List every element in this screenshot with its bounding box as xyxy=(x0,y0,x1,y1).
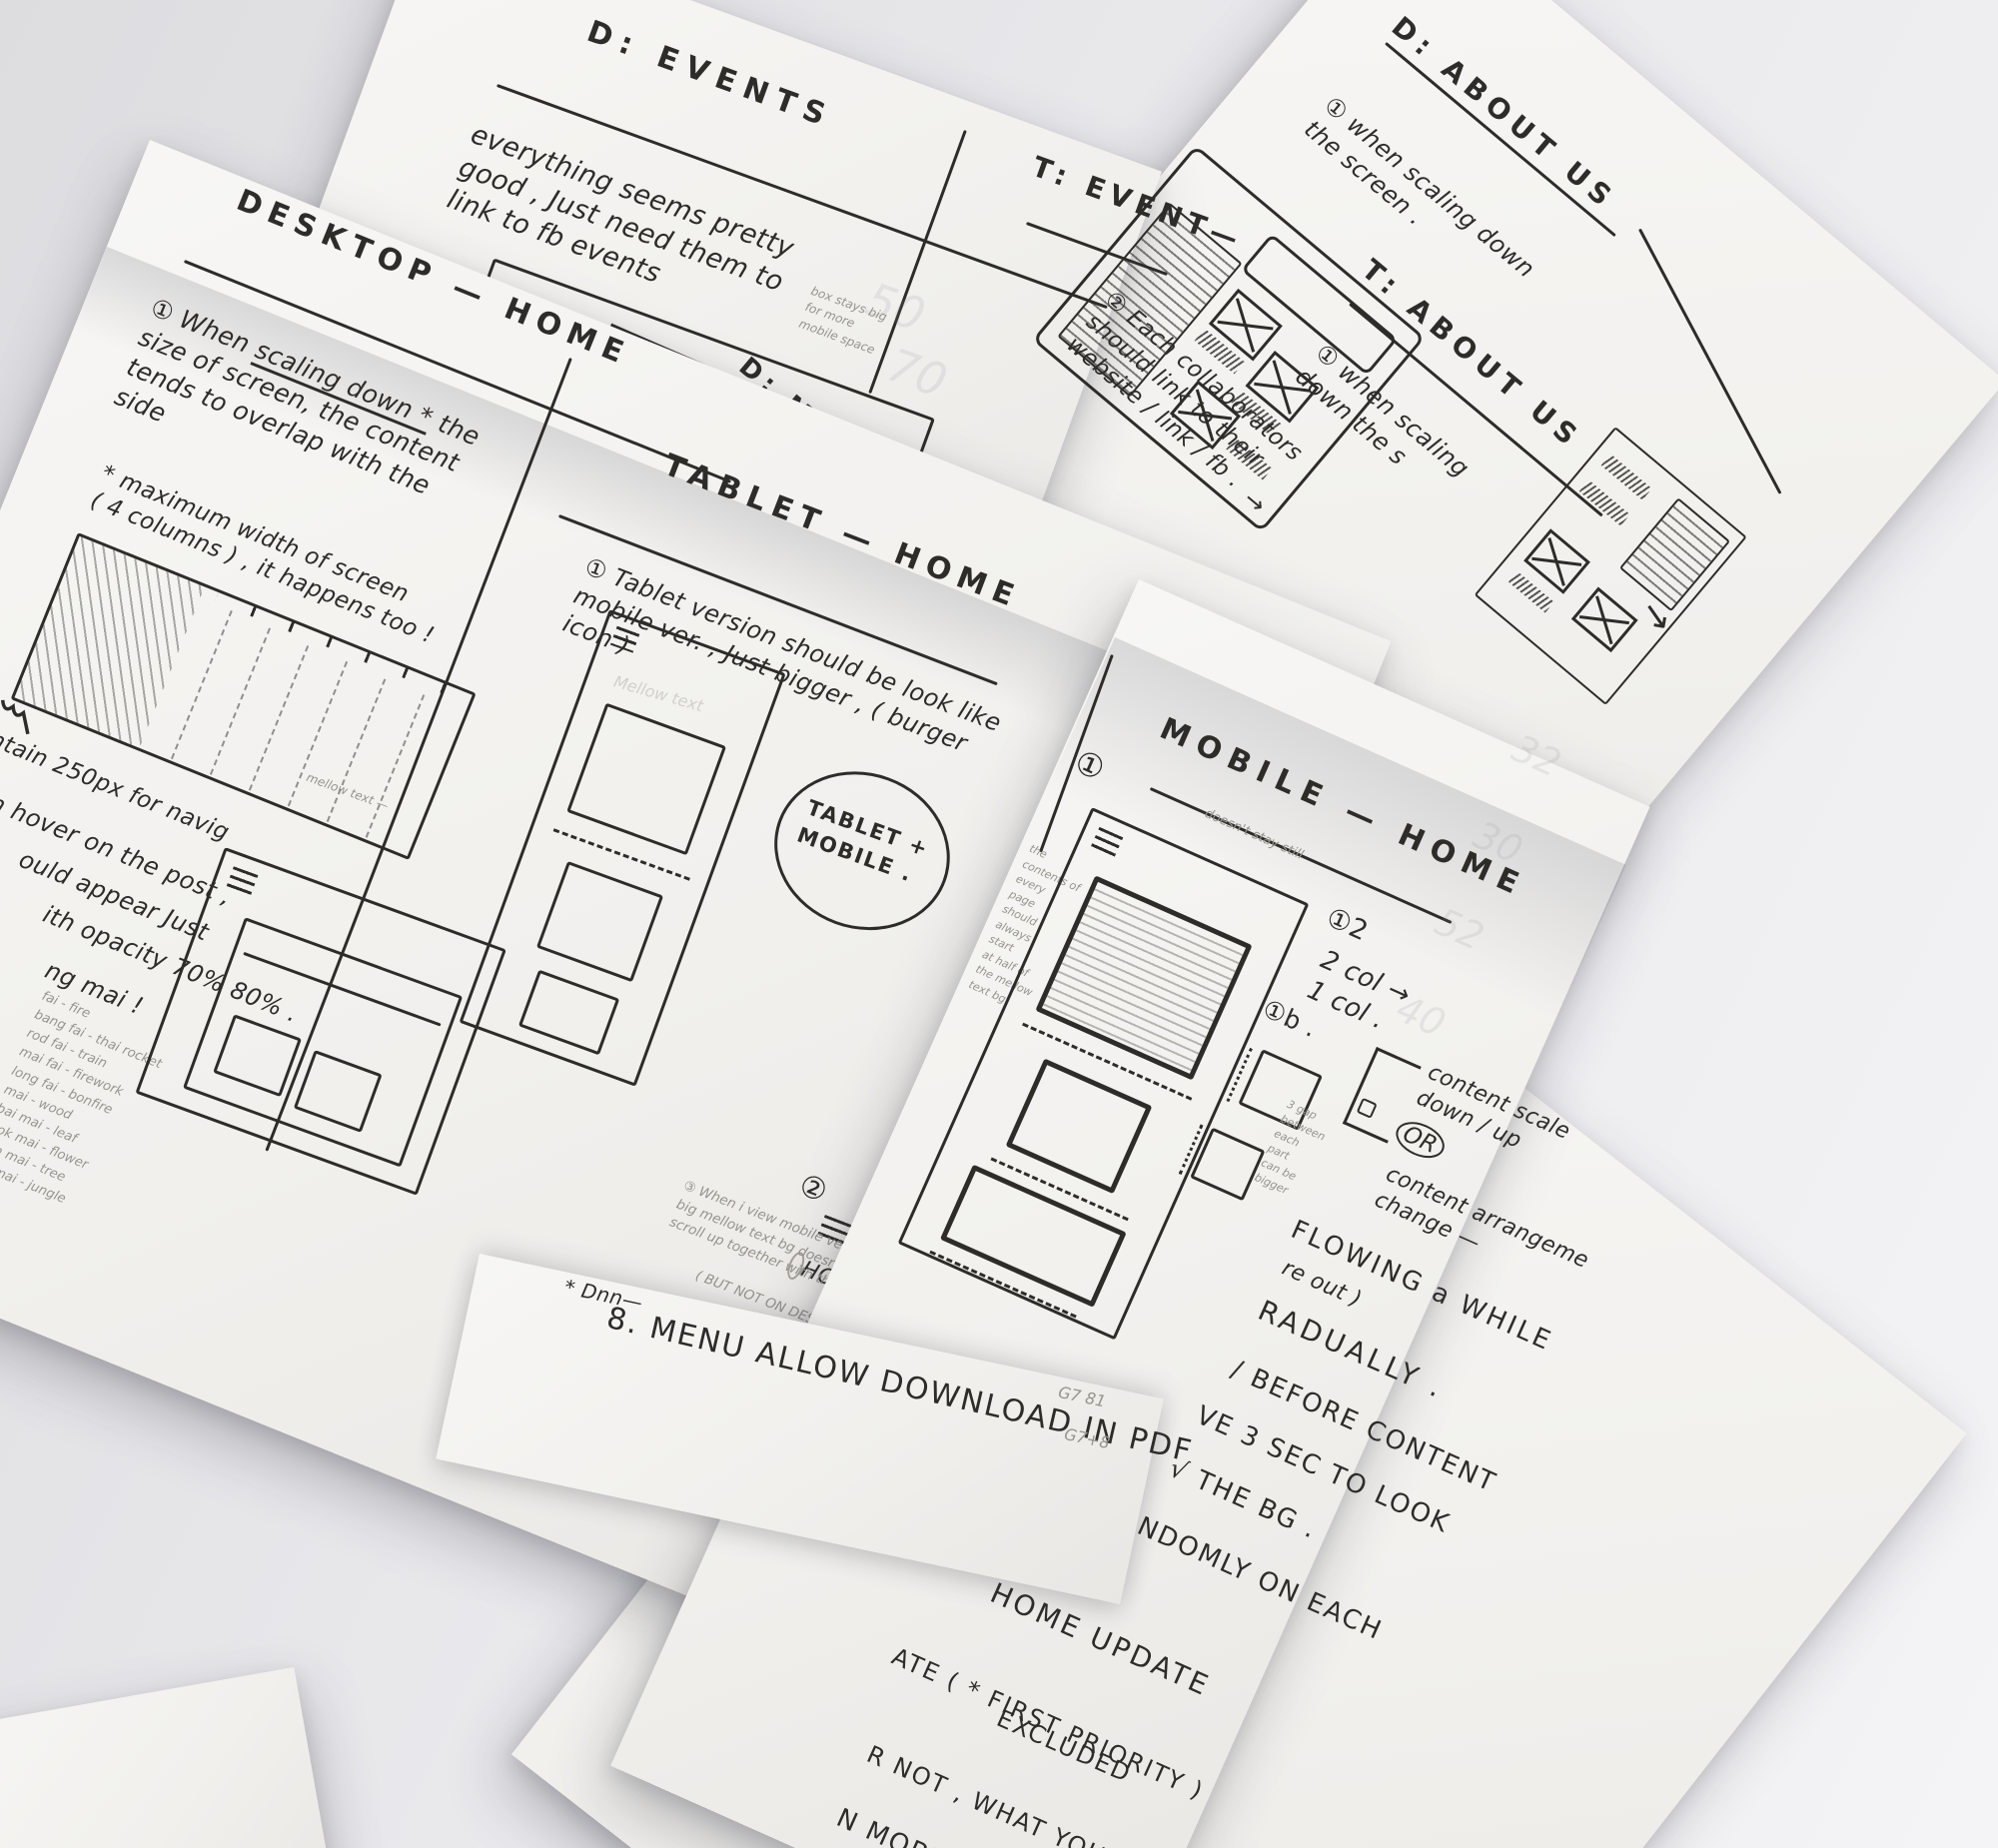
bubble-label: TABLET + MOBILE . xyxy=(792,793,932,892)
hamburger-icon xyxy=(226,866,258,896)
hamburger-icon xyxy=(610,626,639,653)
hamburger-icon xyxy=(1091,827,1124,858)
paper-scrap xyxy=(0,1667,339,1848)
photo-of-wireframe-sketches: D: EVENTS everything seems pretty good ,… xyxy=(0,0,1998,1848)
image-placeholder-icon xyxy=(1571,587,1638,653)
